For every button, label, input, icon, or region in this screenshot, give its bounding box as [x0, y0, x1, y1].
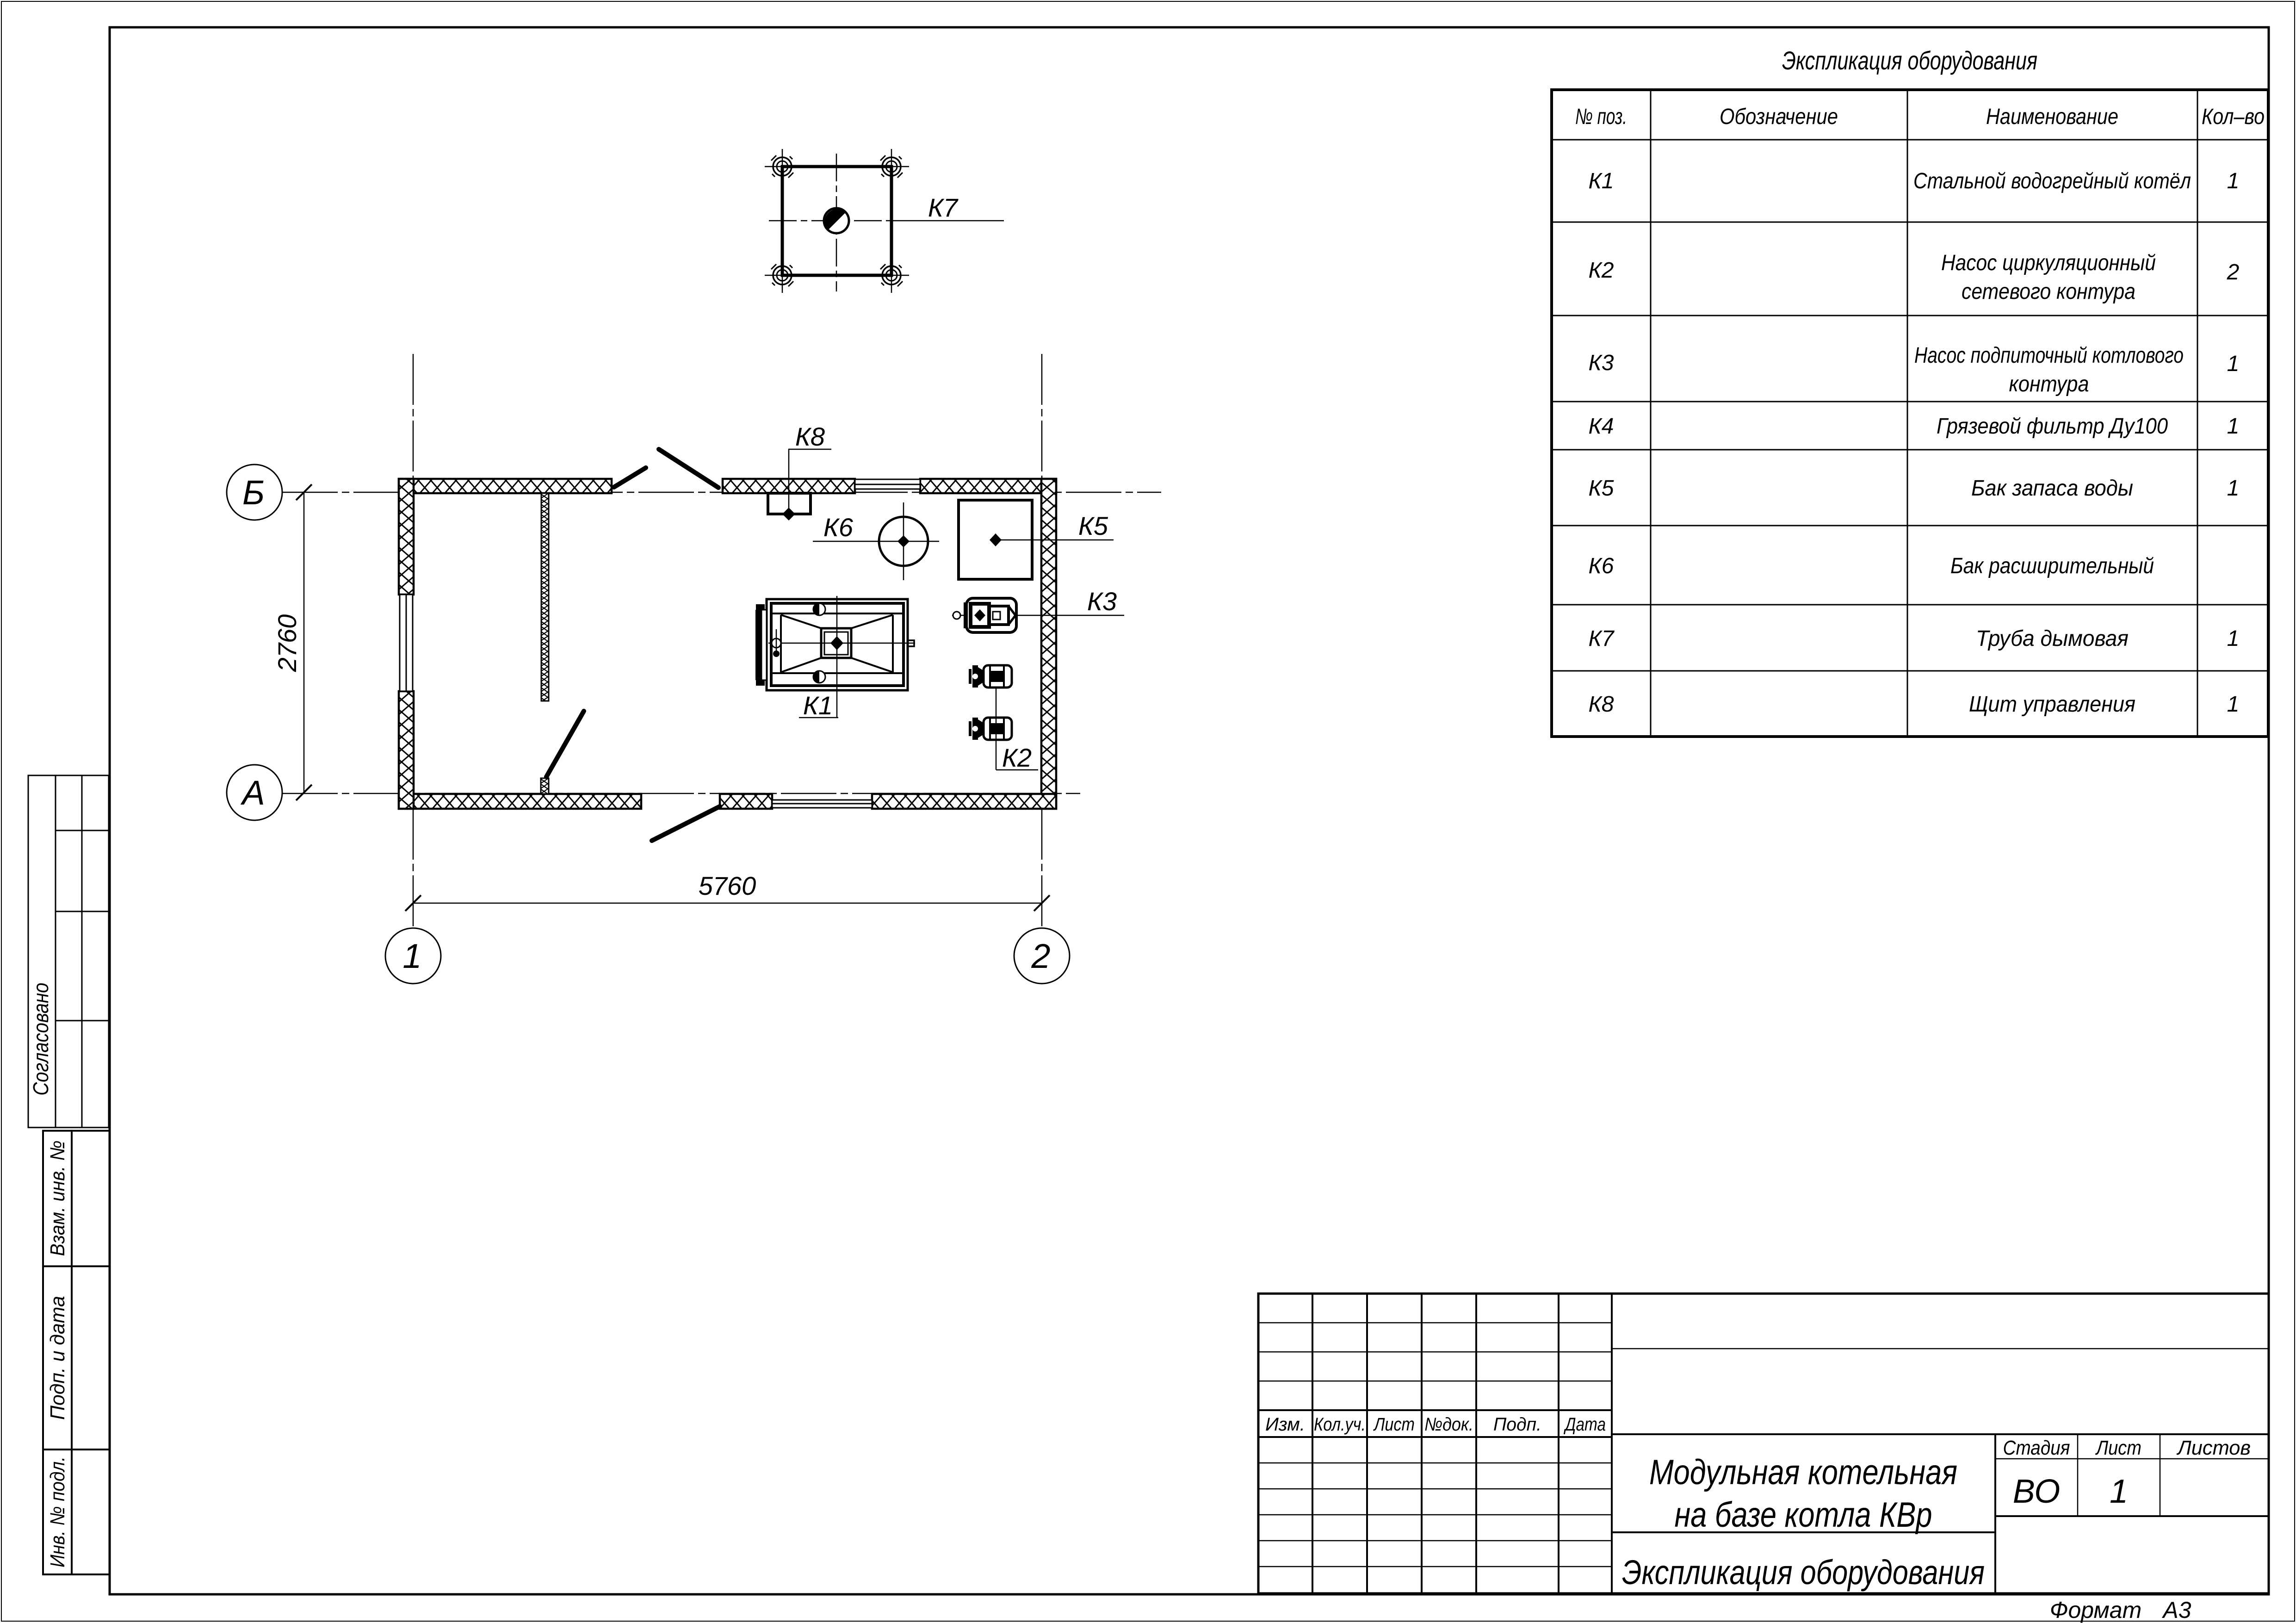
svg-text:1: 1 [2227, 414, 2240, 439]
svg-text:№док.: №док. [1424, 1414, 1473, 1435]
svg-text:контура: контура [2009, 372, 2089, 396]
svg-text:Кол.уч.: Кол.уч. [1314, 1414, 1366, 1435]
svg-text:Взам. инв. №: Взам. инв. № [46, 1140, 69, 1256]
svg-text:Лист: Лист [2095, 1437, 2141, 1459]
svg-text:2760: 2760 [272, 614, 302, 673]
svg-text:1: 1 [402, 937, 421, 975]
svg-text:1: 1 [2227, 169, 2240, 193]
svg-text:Насос циркуляционный: Насос циркуляционный [1941, 251, 2156, 275]
svg-text:К1: К1 [803, 691, 833, 720]
svg-text:Стальной водогрейный котёл: Стальной водогрейный котёл [1913, 169, 2191, 193]
svg-text:Грязевой фильтр Ду100: Грязевой фильтр Ду100 [1937, 414, 2168, 439]
svg-text:Модульная котельная: Модульная котельная [1649, 1453, 1957, 1492]
svg-text:Кол–во: Кол–во [2202, 105, 2265, 129]
svg-text:Стадия: Стадия [2003, 1437, 2070, 1459]
svg-text:2: 2 [1031, 937, 1050, 975]
svg-text:Подп. и дата: Подп. и дата [46, 1296, 69, 1420]
svg-text:К6: К6 [1589, 554, 1614, 578]
svg-text:К2: К2 [1589, 258, 1614, 283]
svg-text:на базе котла КВр: на базе котла КВр [1675, 1495, 1932, 1535]
svg-text:2: 2 [2227, 260, 2240, 285]
svg-text:К1: К1 [1589, 169, 1614, 193]
svg-text:К3: К3 [1589, 351, 1614, 375]
svg-text:Формат: Формат [2050, 1597, 2142, 1623]
svg-text:К5: К5 [1078, 511, 1108, 540]
svg-text:5760: 5760 [699, 871, 756, 900]
svg-text:К5: К5 [1589, 476, 1614, 501]
svg-text:Бак расширительный: Бак расширительный [1950, 554, 2154, 578]
svg-text:А: А [240, 774, 265, 812]
svg-text:К3: К3 [1087, 587, 1117, 616]
svg-text:Лист: Лист [1373, 1414, 1415, 1435]
svg-text:К7: К7 [928, 193, 959, 222]
svg-text:1: 1 [2110, 1473, 2128, 1510]
svg-text:А3: А3 [2161, 1597, 2191, 1623]
svg-text:Изм.: Изм. [1265, 1414, 1305, 1435]
svg-text:Подп.: Подп. [1493, 1414, 1541, 1435]
svg-text:К4: К4 [1589, 414, 1614, 439]
svg-text:1: 1 [2227, 476, 2240, 501]
svg-text:Б: Б [242, 473, 265, 512]
svg-text:Наименование: Наименование [1986, 105, 2118, 129]
svg-text:Труба дымовая: Труба дымовая [1976, 626, 2129, 651]
svg-text:Дата: Дата [1564, 1414, 1606, 1435]
svg-text:1: 1 [2227, 352, 2240, 376]
svg-text:Щит управления: Щит управления [1969, 692, 2135, 717]
svg-text:1: 1 [2227, 626, 2240, 651]
svg-text:Инв. № подл.: Инв. № подл. [46, 1456, 69, 1567]
svg-text:Бак запаса воды: Бак запаса воды [1971, 476, 2133, 501]
svg-text:К8: К8 [795, 422, 825, 451]
svg-text:сетевого контура: сетевого контура [1962, 279, 2135, 304]
svg-text:К6: К6 [823, 513, 854, 542]
svg-text:Обозначение: Обозначение [1720, 105, 1838, 129]
svg-text:Согласовано: Согласовано [29, 983, 53, 1096]
svg-text:№ поз.: № поз. [1575, 105, 1627, 129]
svg-text:Листов: Листов [2176, 1437, 2251, 1459]
svg-text:К2: К2 [1002, 743, 1032, 772]
svg-text:К8: К8 [1589, 692, 1614, 717]
svg-text:1: 1 [2227, 692, 2240, 717]
svg-text:ВО: ВО [2013, 1473, 2060, 1510]
svg-text:Насос подпиточный котлового: Насос подпиточный котлового [1914, 343, 2184, 368]
svg-text:Экспликация оборудования: Экспликация оборудования [1622, 1553, 1985, 1592]
svg-text:Экспликация оборудования: Экспликация оборудования [1782, 46, 2037, 75]
svg-text:К7: К7 [1589, 626, 1615, 651]
